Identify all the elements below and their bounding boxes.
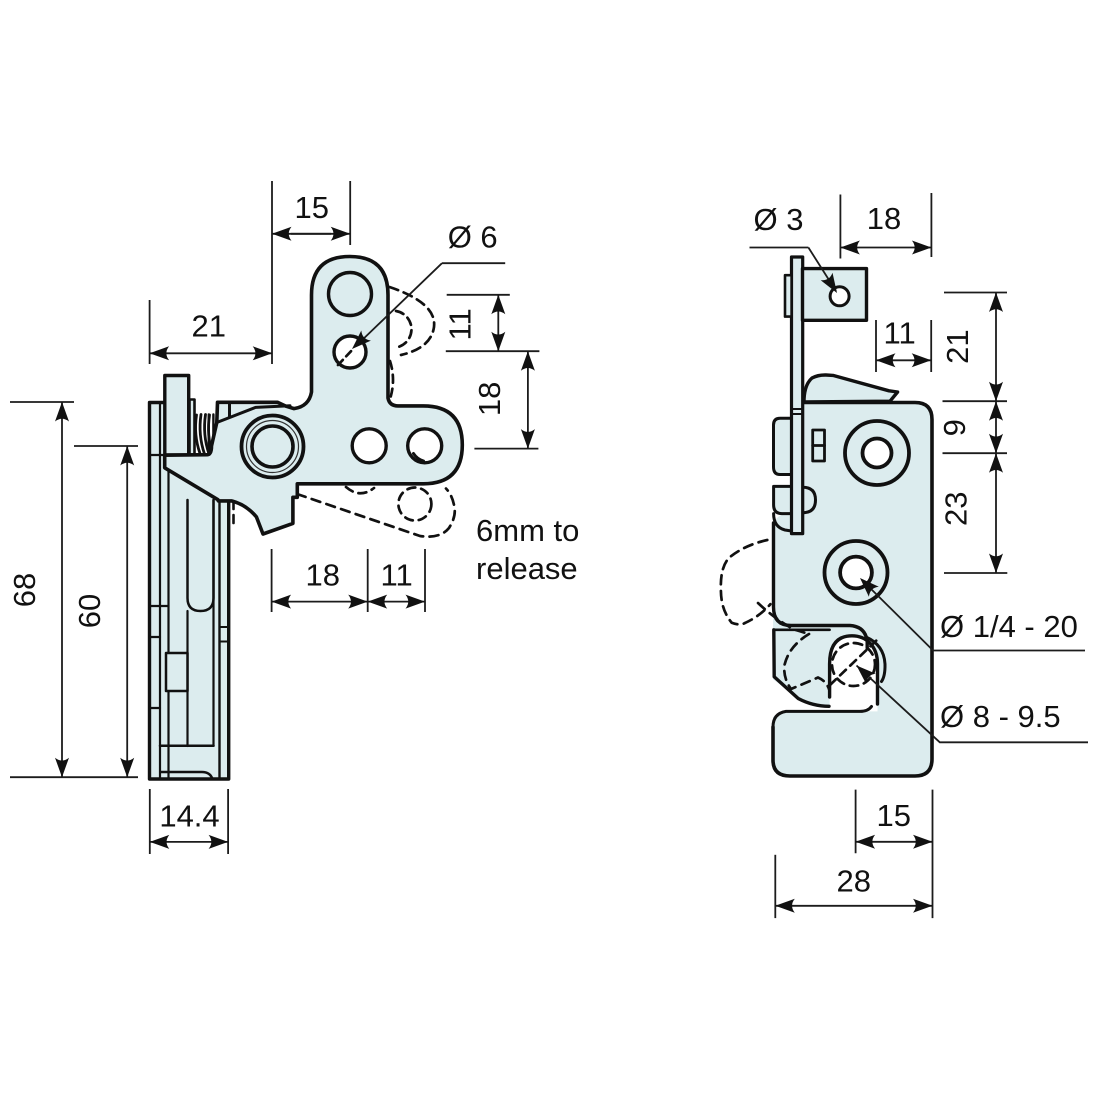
svg-text:11: 11 xyxy=(884,316,916,351)
svg-text:68: 68 xyxy=(7,573,42,607)
svg-text:28: 28 xyxy=(837,864,871,899)
svg-text:15: 15 xyxy=(877,798,911,833)
svg-text:11: 11 xyxy=(443,308,478,340)
svg-text:release: release xyxy=(476,551,578,586)
svg-text:Ø 1/4 - 20: Ø 1/4 - 20 xyxy=(940,609,1078,644)
svg-text:15: 15 xyxy=(294,190,328,225)
svg-text:60: 60 xyxy=(72,594,107,628)
svg-text:18: 18 xyxy=(305,558,339,593)
svg-text:21: 21 xyxy=(192,309,226,344)
svg-text:Ø 8 - 9.5: Ø 8 - 9.5 xyxy=(940,699,1061,734)
svg-text:6mm to: 6mm to xyxy=(476,513,579,548)
svg-text:Ø 6: Ø 6 xyxy=(448,220,498,255)
svg-text:14.4: 14.4 xyxy=(159,799,219,834)
svg-text:18: 18 xyxy=(472,382,507,416)
svg-text:21: 21 xyxy=(940,329,975,363)
svg-text:18: 18 xyxy=(867,201,901,236)
svg-text:Ø 3: Ø 3 xyxy=(754,202,804,237)
svg-text:23: 23 xyxy=(939,491,974,525)
svg-text:9: 9 xyxy=(937,419,972,436)
svg-text:11: 11 xyxy=(381,558,413,593)
